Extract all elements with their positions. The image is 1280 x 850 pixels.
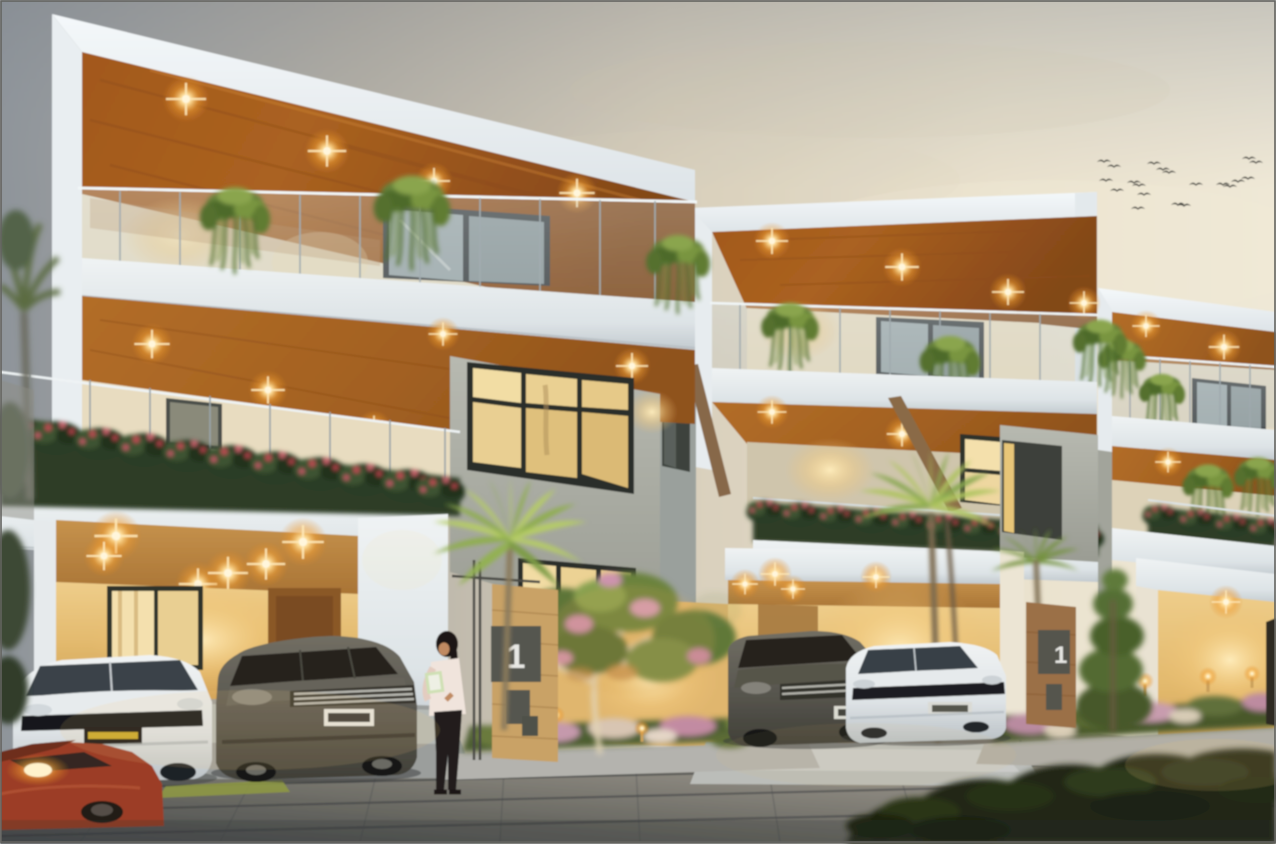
svg-text:1: 1 <box>1054 642 1067 669</box>
